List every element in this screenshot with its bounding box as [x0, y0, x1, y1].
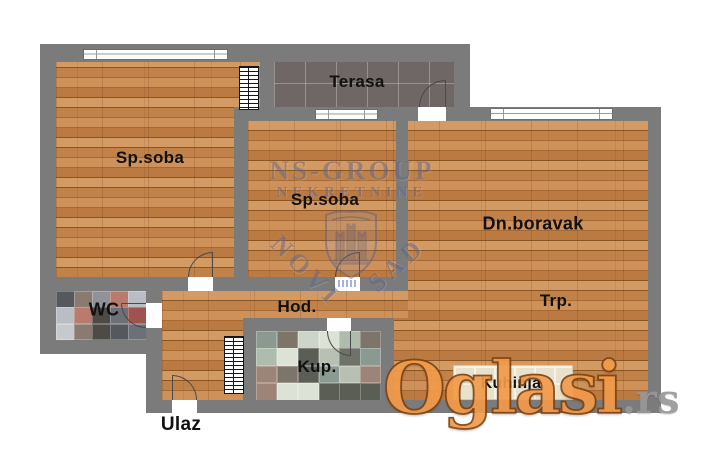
- watermark-agency-line1: NS-GROUP: [270, 156, 435, 187]
- entrance-door-opening: [172, 400, 197, 413]
- bedroom1-door-leaf: [212, 252, 213, 277]
- bathroom-door-leaf: [350, 331, 351, 356]
- tile: [319, 383, 340, 400]
- bedroom1-floor: [56, 58, 262, 278]
- wc-door-opening: [146, 303, 162, 328]
- wall-left: [40, 44, 56, 354]
- tile: [277, 383, 298, 400]
- wall-bedroom1-bedroom2: [234, 107, 248, 291]
- tile: [56, 324, 75, 340]
- room-label-bedroom2: Sp.soba: [291, 190, 359, 210]
- tile: [110, 324, 129, 340]
- room-label-terrace: Terasa: [329, 72, 384, 92]
- tile: [360, 366, 381, 384]
- room-label-bedroom1: Sp.soba: [116, 148, 184, 168]
- tile: [298, 331, 319, 349]
- entrance-door-leaf: [172, 375, 173, 400]
- room-label-wc: WC: [89, 300, 120, 321]
- bedroom2-window: [315, 109, 378, 120]
- tile: [360, 383, 381, 400]
- floor-plan: NS-GROUP NEKRETNINE NOVI SAD Sp.soba Ter…: [0, 0, 703, 463]
- tile: [360, 348, 381, 366]
- wc-door-leaf: [121, 303, 146, 304]
- bedroom1-door-opening: [188, 277, 213, 291]
- bedroom1-radiator: [239, 66, 259, 110]
- tile: [256, 366, 277, 384]
- tile: [360, 331, 381, 349]
- tile: [256, 383, 277, 400]
- tile: [298, 383, 319, 400]
- tile: [256, 331, 277, 349]
- tile: [277, 366, 298, 384]
- bedroom1-window: [83, 49, 228, 60]
- tile: [256, 348, 277, 366]
- terrace-door-opening: [418, 107, 446, 121]
- room-label-hallway: Hod.: [278, 297, 317, 317]
- living-room-window: [490, 108, 613, 120]
- oglasi-logo-tld: .rs: [622, 380, 680, 420]
- oglasi-logo: Oglasi .rs: [383, 352, 679, 424]
- tile: [56, 307, 75, 324]
- tile: [74, 324, 93, 340]
- room-label-bathroom: Kup.: [298, 357, 337, 377]
- room-label-living: Dn.boravak: [482, 214, 583, 235]
- tile: [92, 324, 111, 340]
- tile: [277, 348, 298, 366]
- wall-bath-top: [243, 318, 394, 331]
- tile: [339, 366, 360, 384]
- tile: [339, 383, 360, 400]
- room-label-dining: Trp.: [540, 291, 572, 311]
- room-label-entrance: Ulaz: [161, 414, 201, 436]
- corridor-radiator: [224, 336, 244, 394]
- wall-bath-left: [243, 318, 256, 413]
- tile: [56, 291, 75, 308]
- tile: [277, 331, 298, 349]
- bathroom-door-opening: [327, 318, 351, 331]
- terrace-door-leaf: [445, 80, 446, 107]
- wall-wc-bottom: [40, 340, 162, 354]
- oglasi-logo-text: Oglasi: [383, 352, 620, 424]
